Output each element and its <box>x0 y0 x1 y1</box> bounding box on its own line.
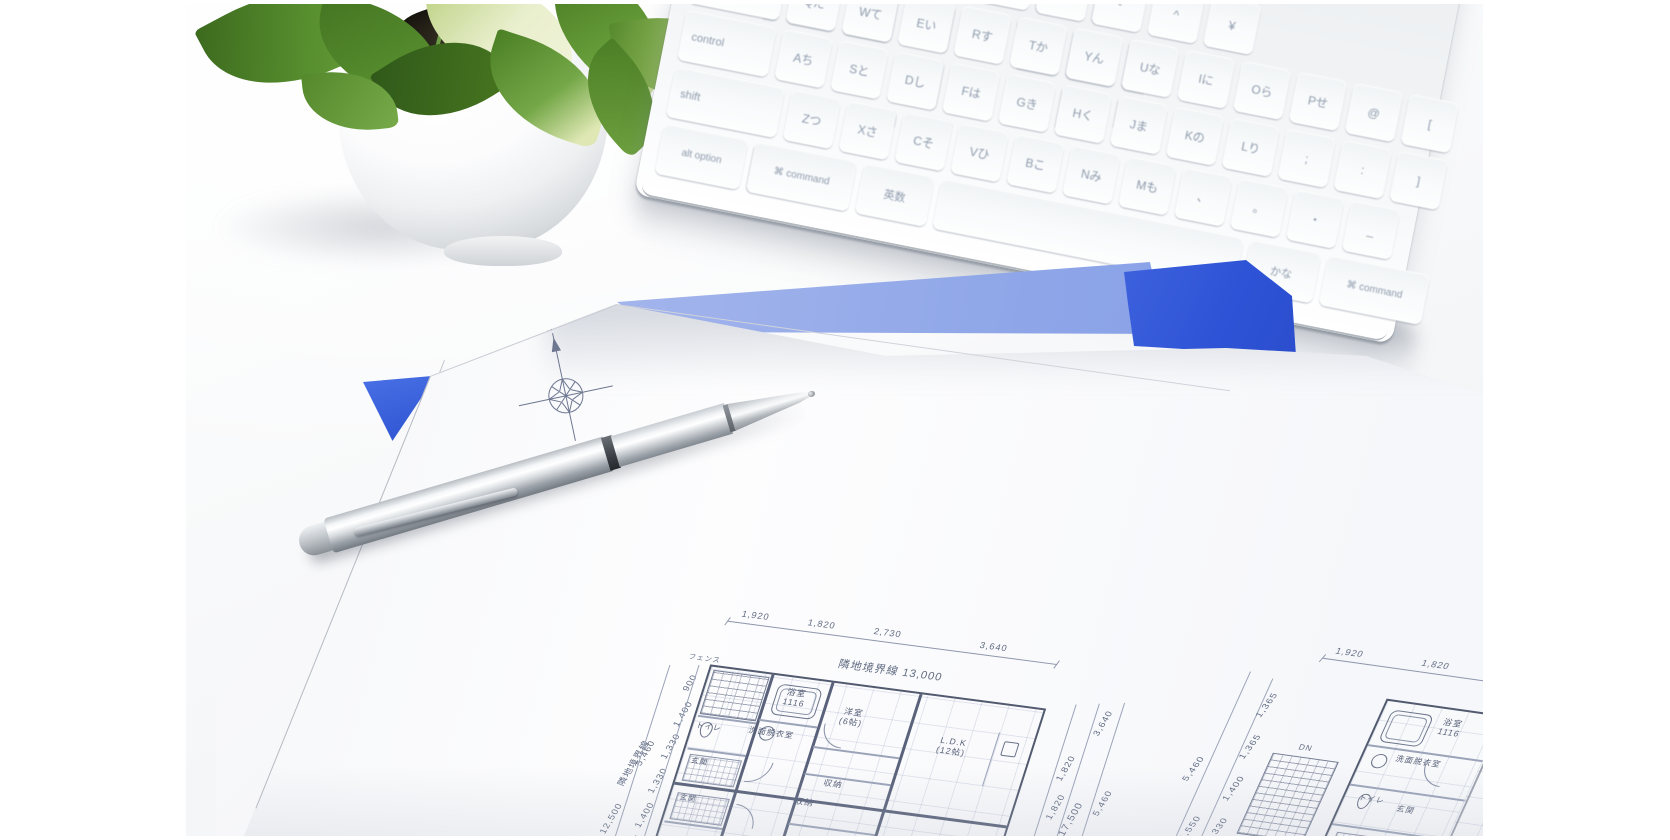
keyboard-key: ; <box>1277 129 1336 189</box>
keyboard-key: Pせ <box>1288 72 1347 132</box>
keyboard-key: 。 <box>1230 178 1289 238</box>
keyboard-key: [ <box>1400 94 1459 154</box>
keyboard-key: Wて <box>841 4 900 43</box>
keyboard-key: Jま <box>1109 95 1168 155</box>
keyboard-key: Cそ <box>894 112 953 172</box>
keyboard-key: Dし <box>886 51 945 111</box>
plant-pot-base <box>444 236 562 266</box>
keyboard-key: Oら <box>1233 61 1292 121</box>
keyboard-key: 、 <box>1174 167 1233 227</box>
keyboard-key: Sと <box>830 40 889 100</box>
keyboard-key: control <box>677 10 777 78</box>
keyboard-key: Xさ <box>838 101 897 161</box>
boundary-label: 隣地境界線 13,000 <box>836 656 945 685</box>
keyboard-key: alt option <box>654 124 748 191</box>
keyboard-key: Hく <box>1054 84 1113 144</box>
keyboard-key: Qた <box>785 4 844 32</box>
pen-tip <box>807 390 815 398</box>
keyboard-key: Fは <box>942 62 1001 122</box>
keyboard-key: Tか <box>1009 16 1068 76</box>
keyboard-key: ] <box>1389 151 1448 211</box>
keyboard-key: - <box>1091 4 1150 33</box>
keyboard-key: Zつ <box>782 90 841 150</box>
keyboard-key: ¥ <box>1203 4 1262 55</box>
keyboard-key: Bこ <box>1006 134 1065 194</box>
desk-photo: 4567890-^¥tabQたWてEいRすTかYんUなIにOらPせ@[contr… <box>186 4 1483 836</box>
keyboard-key: 英数 <box>854 163 935 227</box>
keyboard-key: Uな <box>1121 39 1180 99</box>
keyboard-key: ⌘ command <box>746 142 858 212</box>
keyboard-key: Aち <box>774 29 833 89</box>
keyboard-key: : <box>1333 140 1392 200</box>
keyboard-key: Nみ <box>1062 145 1121 205</box>
keyboard-key: ⌘ command <box>1318 255 1430 325</box>
dn-label: DN <box>1297 743 1314 753</box>
paper-bottom-shade <box>186 766 1483 836</box>
keyboard-key: 0 <box>1035 4 1094 22</box>
keyboard-key: Yん <box>1065 27 1124 87</box>
keyboard-key: Rす <box>953 5 1012 65</box>
keyboard-key: Gき <box>998 73 1057 133</box>
keyboard-key: Eい <box>897 4 956 54</box>
keyboard-key: Kの <box>1165 106 1224 166</box>
keyboard-key: Iに <box>1177 50 1236 110</box>
keyboard-key: Vひ <box>950 123 1009 183</box>
keyboard-key: ・ <box>1286 189 1345 249</box>
dim-label: 1,920 <box>740 609 771 622</box>
fence-label: フェンス <box>687 652 722 666</box>
keyboard-key: Mも <box>1118 156 1177 216</box>
keyboard-key: ^ <box>1147 4 1206 44</box>
keyboard-key: Lり <box>1221 118 1280 178</box>
keyboard-key: @ <box>1344 83 1403 143</box>
keyboard-key: _ <box>1342 200 1401 260</box>
